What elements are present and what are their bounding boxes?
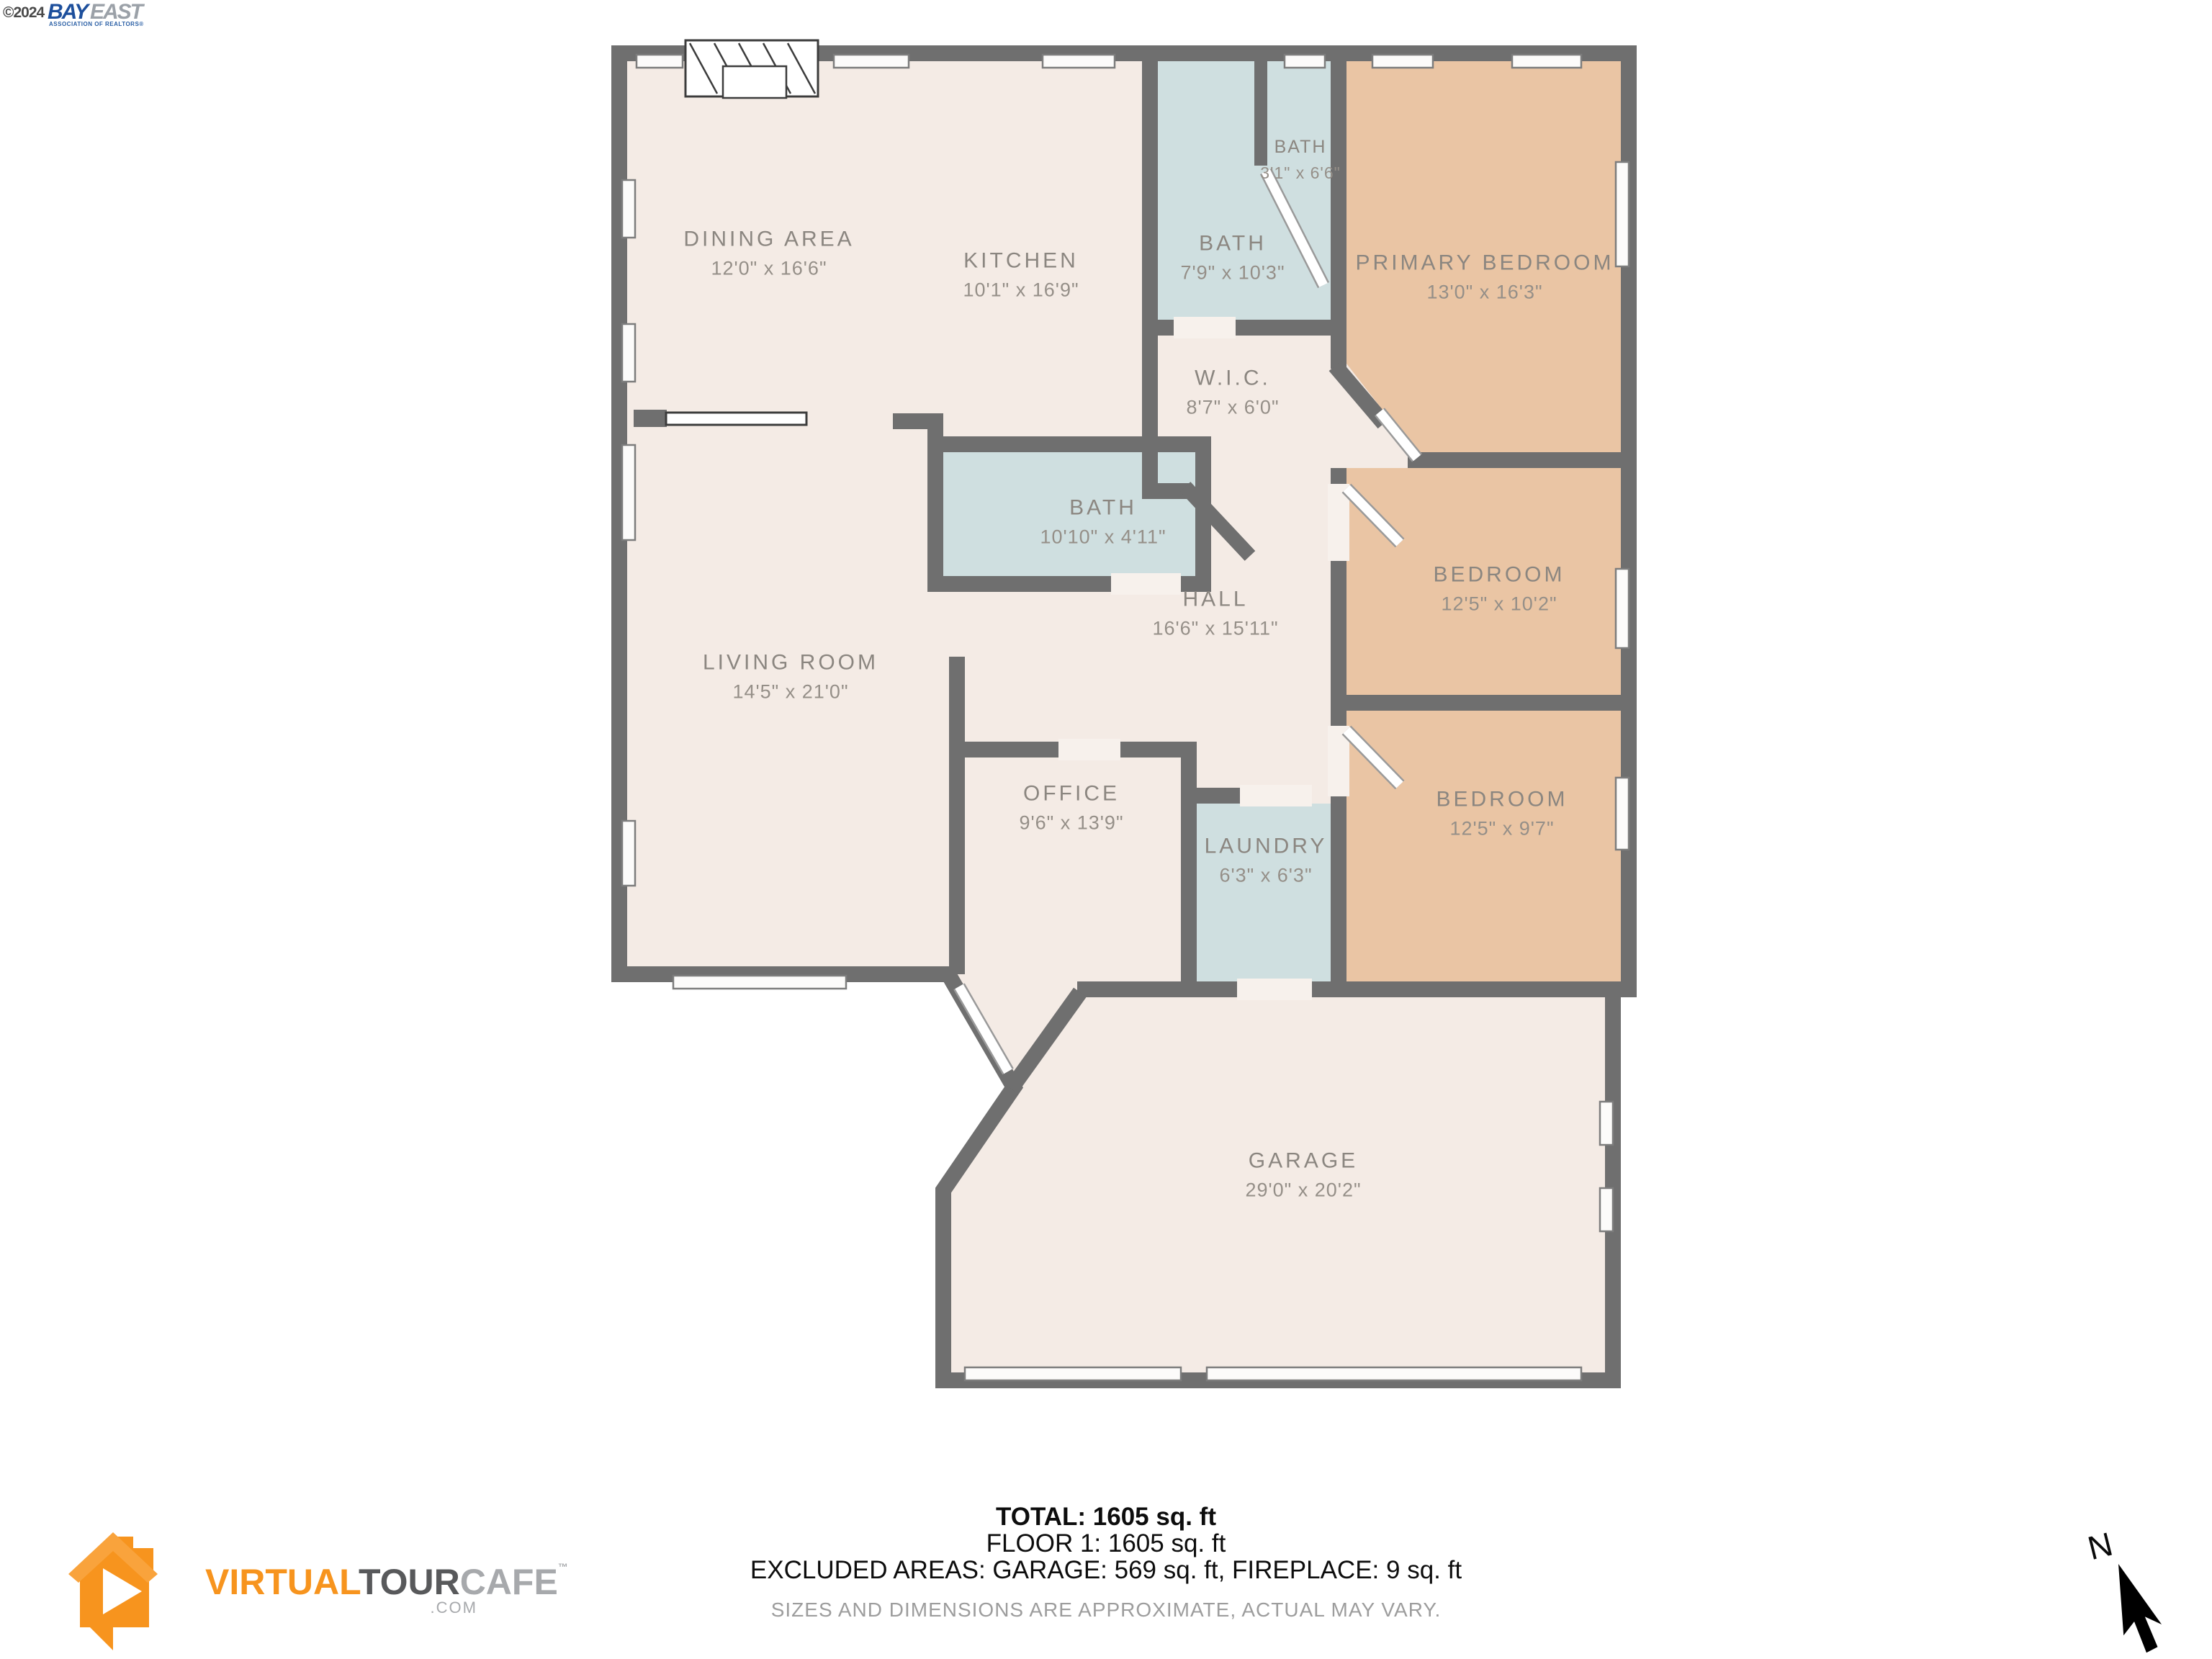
room-label-wic: W.I.C. 8'7" x 6'0"	[1186, 367, 1279, 419]
floorplan-page: DINING AREA 12'0" x 16'6" KITCHEN 10'1" …	[0, 0, 2212, 1659]
room-dims: 29'0" x 20'2"	[1245, 1179, 1361, 1202]
fireplace	[685, 40, 818, 98]
vtc-word-virtual: VIRTUAL	[205, 1562, 359, 1602]
room-name: KITCHEN	[963, 249, 1079, 274]
room-label-dining-area: DINING AREA 12'0" x 16'6"	[683, 228, 854, 280]
vtc-word-cafe: CAFE	[460, 1562, 558, 1602]
room-dims: 12'0" x 16'6"	[683, 258, 854, 280]
room-dims: 12'5" x 9'7"	[1436, 818, 1568, 840]
room-name: BEDROOM	[1436, 788, 1568, 812]
room-label-kitchen: KITCHEN 10'1" x 16'9"	[963, 249, 1079, 302]
room-dims: 16'6" x 15'11"	[1152, 618, 1278, 640]
room-label-hall: HALL 16'6" x 15'11"	[1152, 588, 1278, 640]
room-name: PRIMARY BEDROOM	[1356, 251, 1614, 276]
room-dims: 14'5" x 21'0"	[703, 681, 878, 703]
room-name: BATH	[1180, 232, 1285, 256]
room-dims: 9'6" x 13'9"	[1019, 812, 1123, 835]
room-name: DINING AREA	[683, 228, 854, 252]
room-label-primary-bedroom: PRIMARY BEDROOM 13'0" x 16'3"	[1356, 251, 1614, 304]
room-fill-bedroom-2	[1346, 711, 1621, 981]
room-name: W.I.C.	[1186, 367, 1279, 391]
room-label-bath-middle: BATH 10'10" x 4'11"	[1040, 496, 1166, 549]
copyright-text: ©2024	[3, 4, 44, 22]
room-name: LIVING ROOM	[703, 651, 878, 675]
room-dims: 10'10" x 4'11"	[1040, 526, 1166, 549]
vtc-house-icon	[68, 1527, 198, 1653]
room-label-bath-small: BATH 3'1" x 6'6"	[1260, 137, 1341, 183]
room-name: OFFICE	[1019, 782, 1123, 806]
room-label-laundry: LAUNDRY 6'3" x 6'3"	[1205, 835, 1328, 887]
room-dims: 8'7" x 6'0"	[1186, 397, 1279, 419]
room-label-bedroom-2: BEDROOM 12'5" x 9'7"	[1436, 788, 1568, 840]
room-label-bedroom-1: BEDROOM 12'5" x 10'2"	[1433, 563, 1565, 616]
room-label-living-room: LIVING ROOM 14'5" x 21'0"	[703, 651, 878, 703]
room-name: BATH	[1040, 496, 1166, 521]
room-dims: 7'9" x 10'3"	[1180, 262, 1285, 284]
room-label-garage: GARAGE 29'0" x 20'2"	[1245, 1149, 1361, 1202]
room-name: HALL	[1152, 588, 1278, 612]
vtc-trademark: ™	[558, 1561, 568, 1573]
room-name: BATH	[1260, 137, 1341, 158]
room-dims: 6'3" x 6'3"	[1205, 865, 1328, 887]
room-dims: 10'1" x 16'9"	[963, 279, 1079, 302]
association-subtitle: ASSOCIATION OF REALTORS®	[49, 21, 144, 27]
room-fill-laundry	[1197, 804, 1331, 981]
half-wall-counter	[666, 413, 806, 425]
room-label-bath-upper: BATH 7'9" x 10'3"	[1180, 232, 1285, 284]
room-dims: 12'5" x 10'2"	[1433, 593, 1565, 616]
vtc-wordmark: VIRTUALTOURCAFE™	[205, 1561, 568, 1603]
room-label-office: OFFICE 9'6" x 13'9"	[1019, 782, 1123, 835]
vtc-domain-suffix: .COM	[205, 1599, 477, 1617]
vtc-word-tour: TOUR	[359, 1562, 460, 1602]
room-dims: 3'1" x 6'6"	[1260, 163, 1341, 183]
room-dims: 13'0" x 16'3"	[1356, 282, 1614, 304]
room-name: LAUNDRY	[1205, 835, 1328, 859]
room-name: BEDROOM	[1433, 563, 1565, 588]
room-name: GARAGE	[1245, 1149, 1361, 1174]
virtualtourcafe-logo: VIRTUALTOURCAFE™ .COM	[68, 1527, 515, 1656]
